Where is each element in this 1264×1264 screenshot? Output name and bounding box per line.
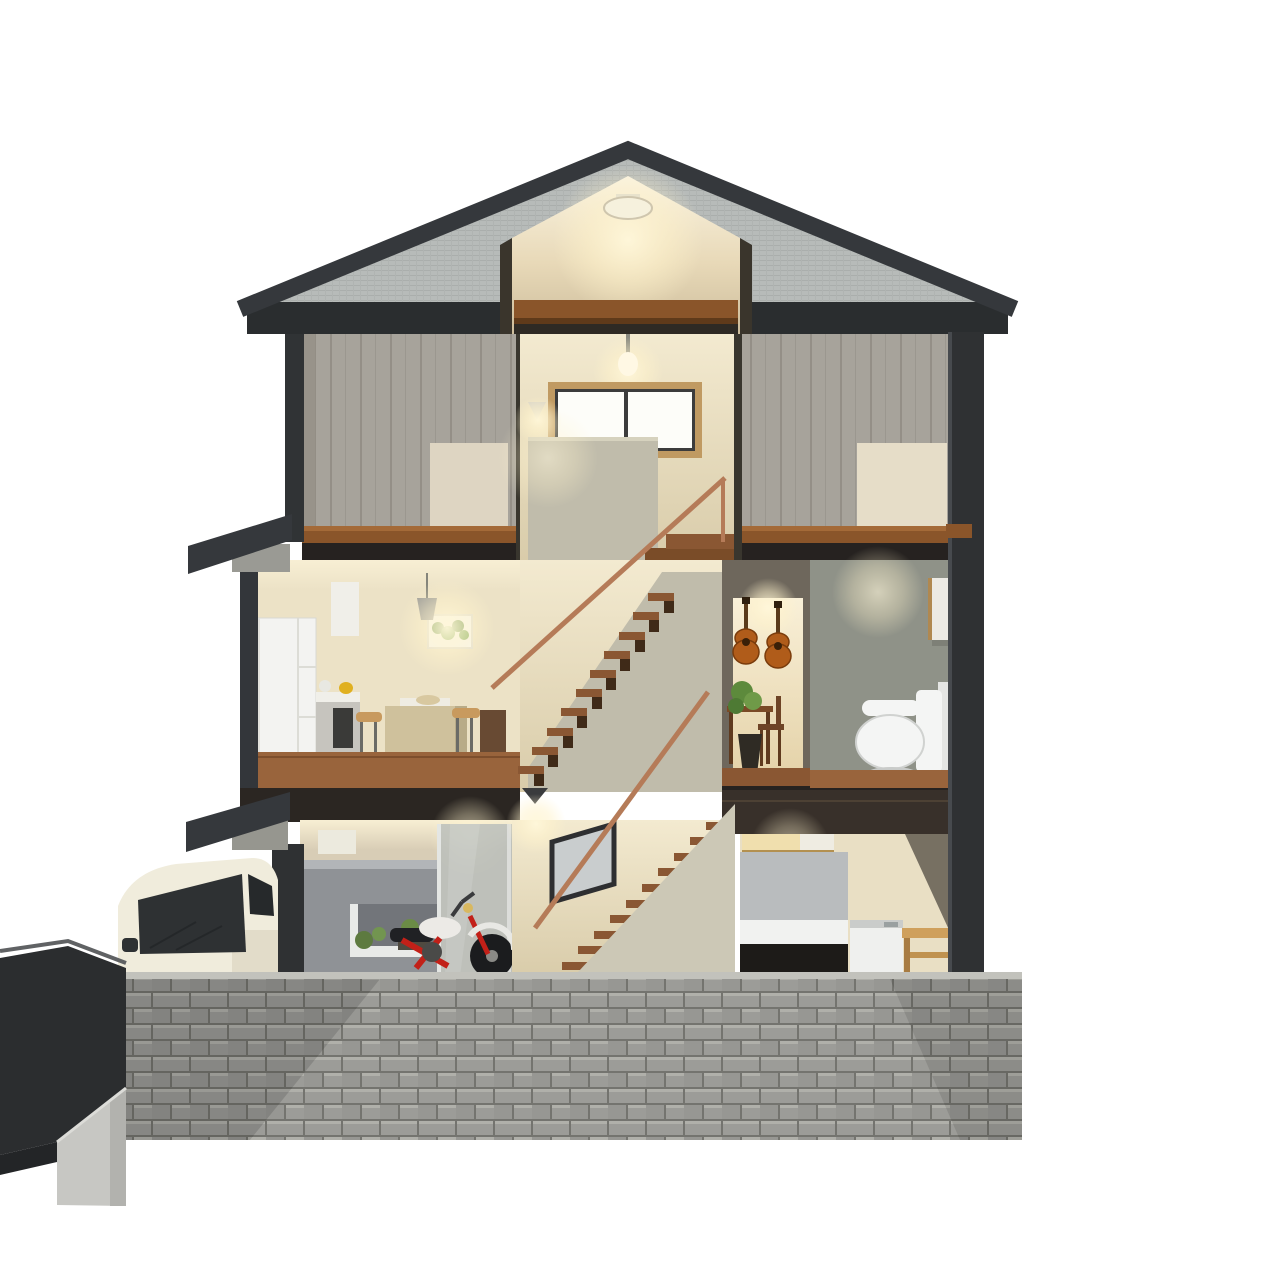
- loft-floor-beam: [514, 300, 738, 320]
- kitchen-dining: [250, 560, 520, 802]
- pendant-bulb: [618, 352, 638, 376]
- front-brick-wall: [118, 972, 1022, 1140]
- garage-soffit-box: [318, 830, 356, 854]
- cut-wall-left-mid: [240, 560, 258, 800]
- landing-step-1: [645, 548, 740, 562]
- brick-wall-cap: [126, 972, 1022, 979]
- cut-wall-right-edge: [948, 332, 952, 976]
- moto-tank: [419, 917, 461, 939]
- oven: [333, 708, 353, 748]
- music-room: [722, 560, 810, 792]
- bedroom-right-floor: [740, 531, 950, 543]
- house-section: [186, 150, 1015, 978]
- moto-engine: [422, 942, 442, 962]
- garage: [272, 796, 514, 978]
- kitchen-floor-line: [255, 756, 520, 758]
- floor-band-grain: [722, 800, 960, 802]
- bedroom-left-floor: [302, 531, 520, 543]
- music-room-floor: [722, 768, 810, 788]
- kitchen-ceiling-lit: [255, 560, 520, 590]
- bedroom-right-panel: [857, 443, 947, 530]
- curb-shade: [110, 1088, 126, 1206]
- bedroom-right-floor-edge: [740, 543, 950, 560]
- laundry-cabinet-1: [742, 834, 800, 850]
- house-section-render: [0, 0, 1264, 1264]
- bedroom-left-panel: [430, 443, 508, 533]
- sill-plant-2: [372, 927, 386, 941]
- loft-beam-shadow: [514, 324, 738, 334]
- attic-cut-edge-right: [740, 238, 752, 334]
- garage-partition-wall: [287, 860, 437, 976]
- bath-panel-base: [740, 920, 848, 944]
- attic-cut-edge-left: [500, 238, 512, 334]
- cut-wall-right: [948, 332, 984, 976]
- kettle: [319, 680, 331, 692]
- toilet-room: [810, 546, 966, 794]
- loft-beam-edge: [514, 318, 738, 324]
- moto-headlight: [463, 903, 473, 913]
- kitchen-wall-cabinet: [331, 582, 359, 636]
- bath-panel: [740, 852, 848, 922]
- laundry-cabinet-2: [800, 834, 834, 850]
- landing-step-2: [666, 534, 740, 549]
- render-canvas: [0, 0, 1264, 1264]
- driveway: [0, 941, 126, 1206]
- laundry-floor-dark: [740, 944, 848, 976]
- handrail-post: [721, 478, 725, 542]
- second-floor: [302, 334, 950, 562]
- cut-wall-hall-right: [734, 334, 742, 560]
- car-mirror: [122, 938, 138, 952]
- cut-wall-left-upper: [285, 334, 304, 542]
- bedroom-right-floor-top: [740, 526, 950, 531]
- sill-plant-1: [355, 931, 373, 949]
- bedroom-left-floor-top: [302, 526, 520, 531]
- right-floor-ledge: [946, 524, 972, 538]
- bedroom-left-floor-edge: [302, 543, 520, 560]
- toilet-ceiling-glow: [832, 546, 924, 638]
- squash: [339, 682, 353, 694]
- attic-light-glow: [553, 165, 703, 315]
- toilet-floor: [810, 770, 950, 790]
- washing-machine: [850, 920, 903, 976]
- stairwell-wall-glow: [498, 408, 598, 508]
- bedroom-left-shade: [302, 334, 316, 540]
